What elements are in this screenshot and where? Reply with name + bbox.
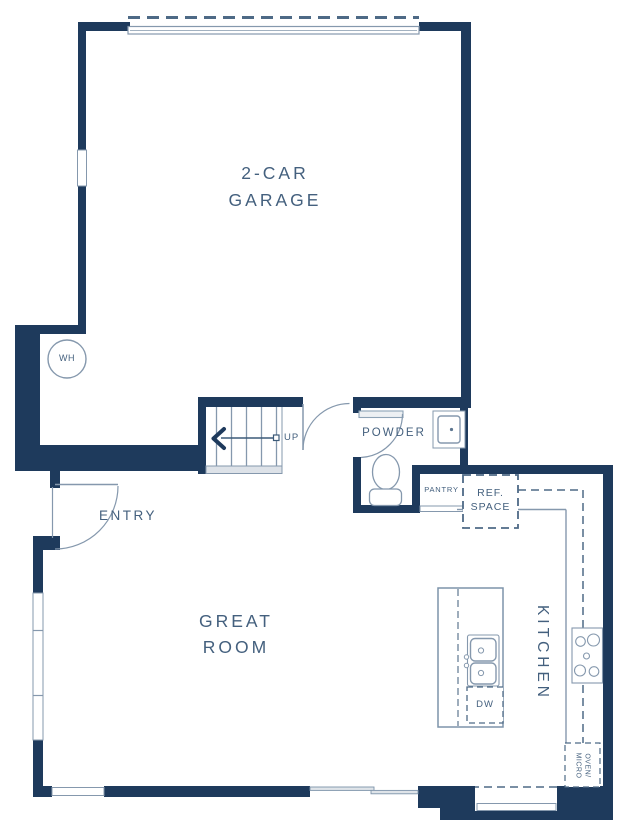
water-heater-label: WH [53,353,81,363]
pantry-shelf [420,506,463,512]
garage-hall-door-swing [303,404,350,451]
window-garage-west [78,150,87,186]
powder-sink-icon [433,411,465,448]
toilet-icon [370,455,402,506]
window-kitchen-bay [477,804,556,811]
floor-plan: 2-CAR GARAGE WH UP POWDER PANTRY REF. SP… [0,0,618,820]
ref-space-label: REF. SPACE [462,486,519,514]
great-room-label-line1: GREAT [175,608,297,634]
great-room-label: GREAT ROOM [175,608,297,660]
oven-micro-label: OVEN/ MICRO [574,743,591,789]
garage-door-panel [128,27,419,35]
up-label: UP [284,432,308,443]
pantry-label: PANTRY [417,485,466,494]
oven-micro-label-line2: MICRO [574,743,583,789]
window-greatroom-west [33,593,43,740]
cooktop-icon [572,628,603,683]
stair-landing [206,466,282,474]
kitchen-label: KITCHEN [534,598,550,708]
ref-space-label-line2: SPACE [462,500,519,514]
great-room-label-line2: ROOM [175,634,297,660]
powder-label: POWDER [354,427,434,439]
ref-space-label-line1: REF. [462,486,519,500]
garage-label-line1: 2-CAR [200,160,350,187]
dishwasher-label: DW [470,699,500,710]
entry-label: ENTRY [92,508,164,523]
garage-label: 2-CAR GARAGE [200,160,350,214]
oven-micro-label-line1: OVEN/ [582,743,591,789]
sliding-glass-door [310,787,418,794]
fixtures-layer [0,0,618,820]
garage-label-line2: GARAGE [200,187,350,214]
window-greatroom-south [52,788,104,796]
